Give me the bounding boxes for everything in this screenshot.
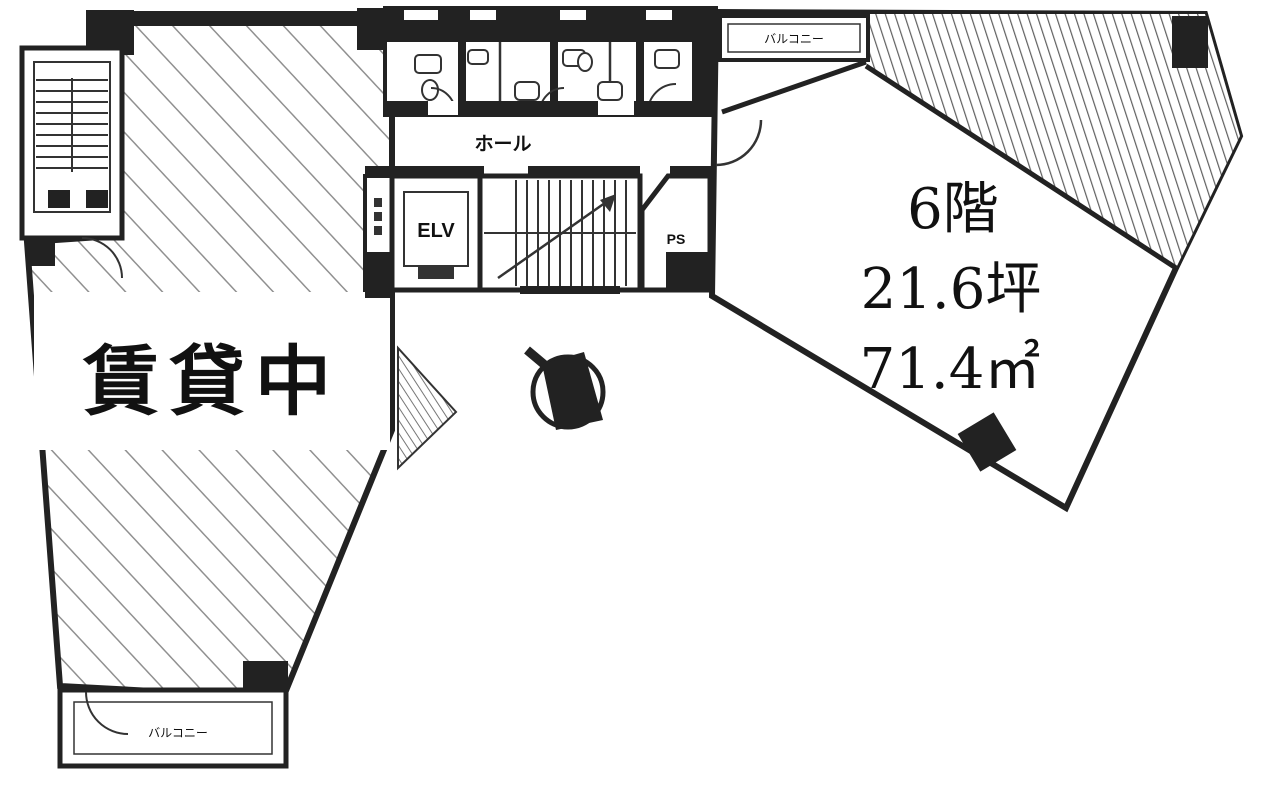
balcony-top-label: バルコニー bbox=[764, 32, 824, 46]
balcony-top: バルコニー bbox=[720, 16, 868, 60]
balcony-bottom-label: バルコニー bbox=[148, 726, 208, 740]
restroom-block bbox=[385, 8, 716, 116]
right-unit-area-label: 71.4㎡ bbox=[860, 337, 1041, 402]
wall-column bbox=[27, 238, 55, 266]
main-staircase bbox=[480, 176, 640, 294]
pipe-shaft: PS bbox=[642, 176, 712, 292]
entrance-wedge bbox=[398, 348, 456, 468]
hall-label: ホール bbox=[474, 134, 531, 155]
elevator-room: ELV bbox=[392, 176, 480, 290]
north-compass-icon bbox=[527, 350, 603, 430]
floor-plan-page: 賃貸中 bbox=[0, 0, 1280, 806]
floor-plan-svg: 賃貸中 bbox=[0, 0, 1280, 806]
elevator-label: ELV bbox=[417, 220, 455, 242]
wall-segment bbox=[108, 11, 398, 26]
right-unit-floor-label: 6階 bbox=[907, 177, 999, 242]
wall-column bbox=[1172, 16, 1208, 68]
right-unit-area: バルコニー 6階 21.6坪 71.4㎡ bbox=[712, 12, 1240, 508]
hall-area: ホール bbox=[365, 134, 716, 176]
pipe-shaft-label: PS bbox=[667, 231, 686, 247]
building-core: ホール ELV bbox=[365, 8, 716, 298]
left-unit-area: 賃貸中 bbox=[22, 8, 456, 766]
balcony-bottom: バルコニー bbox=[60, 690, 286, 766]
right-unit-tsubo-label: 21.6坪 bbox=[861, 257, 1042, 322]
left-unit-label: 賃貸中 bbox=[82, 340, 341, 425]
